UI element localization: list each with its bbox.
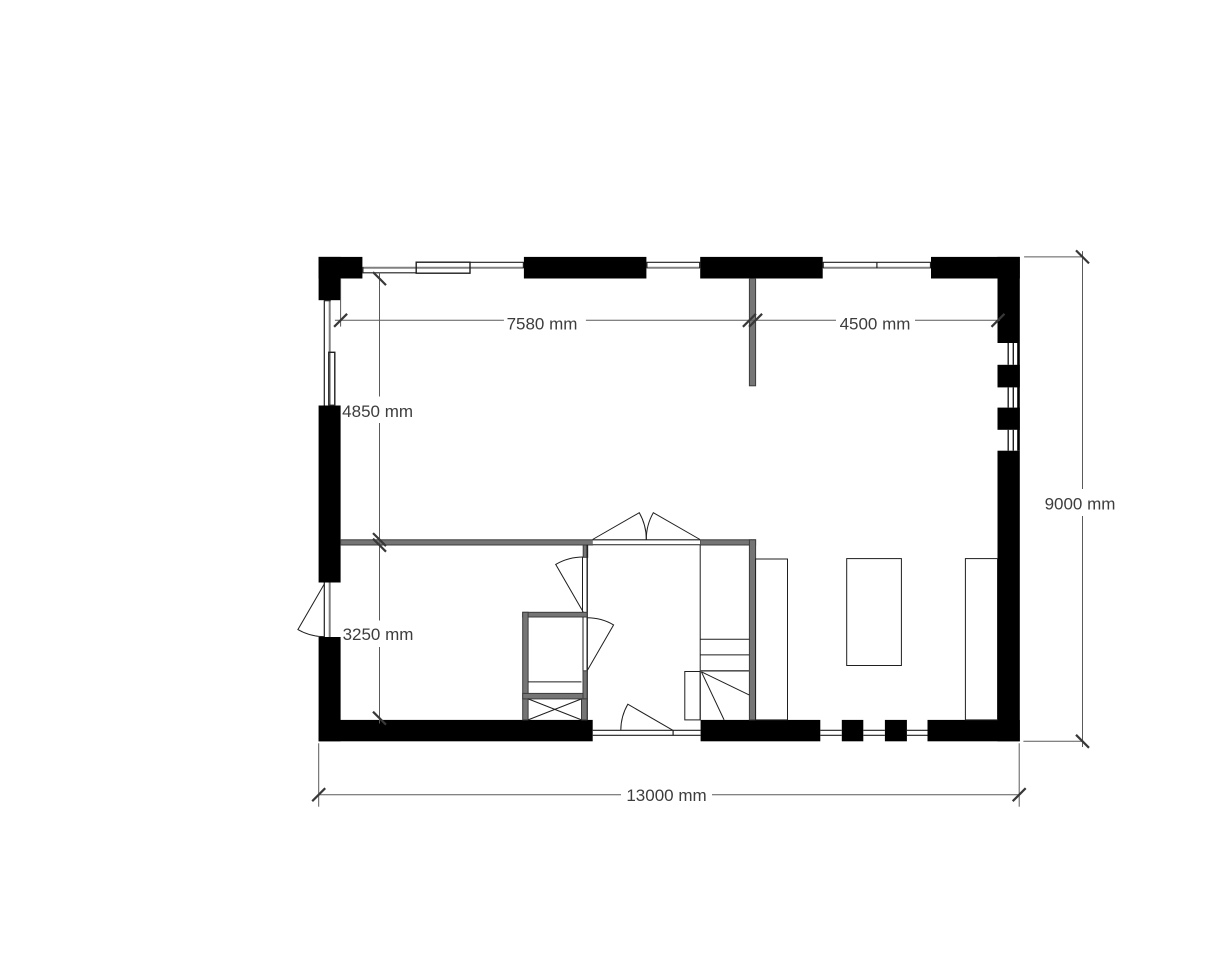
svg-text:4850 mm: 4850 mm [342,402,413,421]
svg-text:13000 mm: 13000 mm [626,786,706,805]
svg-text:4500 mm: 4500 mm [840,314,911,333]
svg-text:3250 mm: 3250 mm [343,625,414,644]
svg-text:9000 mm: 9000 mm [1045,494,1116,513]
svg-text:7580 mm: 7580 mm [507,314,578,333]
